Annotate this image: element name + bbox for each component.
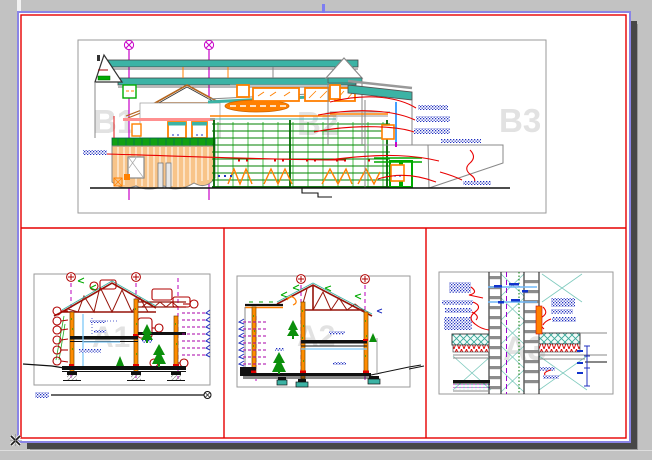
cad-preview-window: { "window": { "background_color": "#c2c2… [0,0,652,460]
watermark-b3: B3 [499,102,541,139]
panel-section-a1: A1 [23,273,210,385]
base-slab [453,380,490,391]
panel-elevation: B1 B2 B3 [78,40,546,213]
flashing-strip [536,306,542,334]
corner-grip-x-icon[interactable] [9,433,23,447]
selection-grip-top[interactable] [322,4,325,13]
panel-section-a2: A2 [237,275,421,387]
paper-sheet: B1 B2 B3 [17,11,631,443]
panel-detail-a3: A3 [439,272,613,394]
window-bottom-edge [0,450,652,451]
drawing-sheet: B1 B2 B3 [19,13,629,441]
window-artifact [17,0,21,11]
scale-bar [35,392,211,399]
